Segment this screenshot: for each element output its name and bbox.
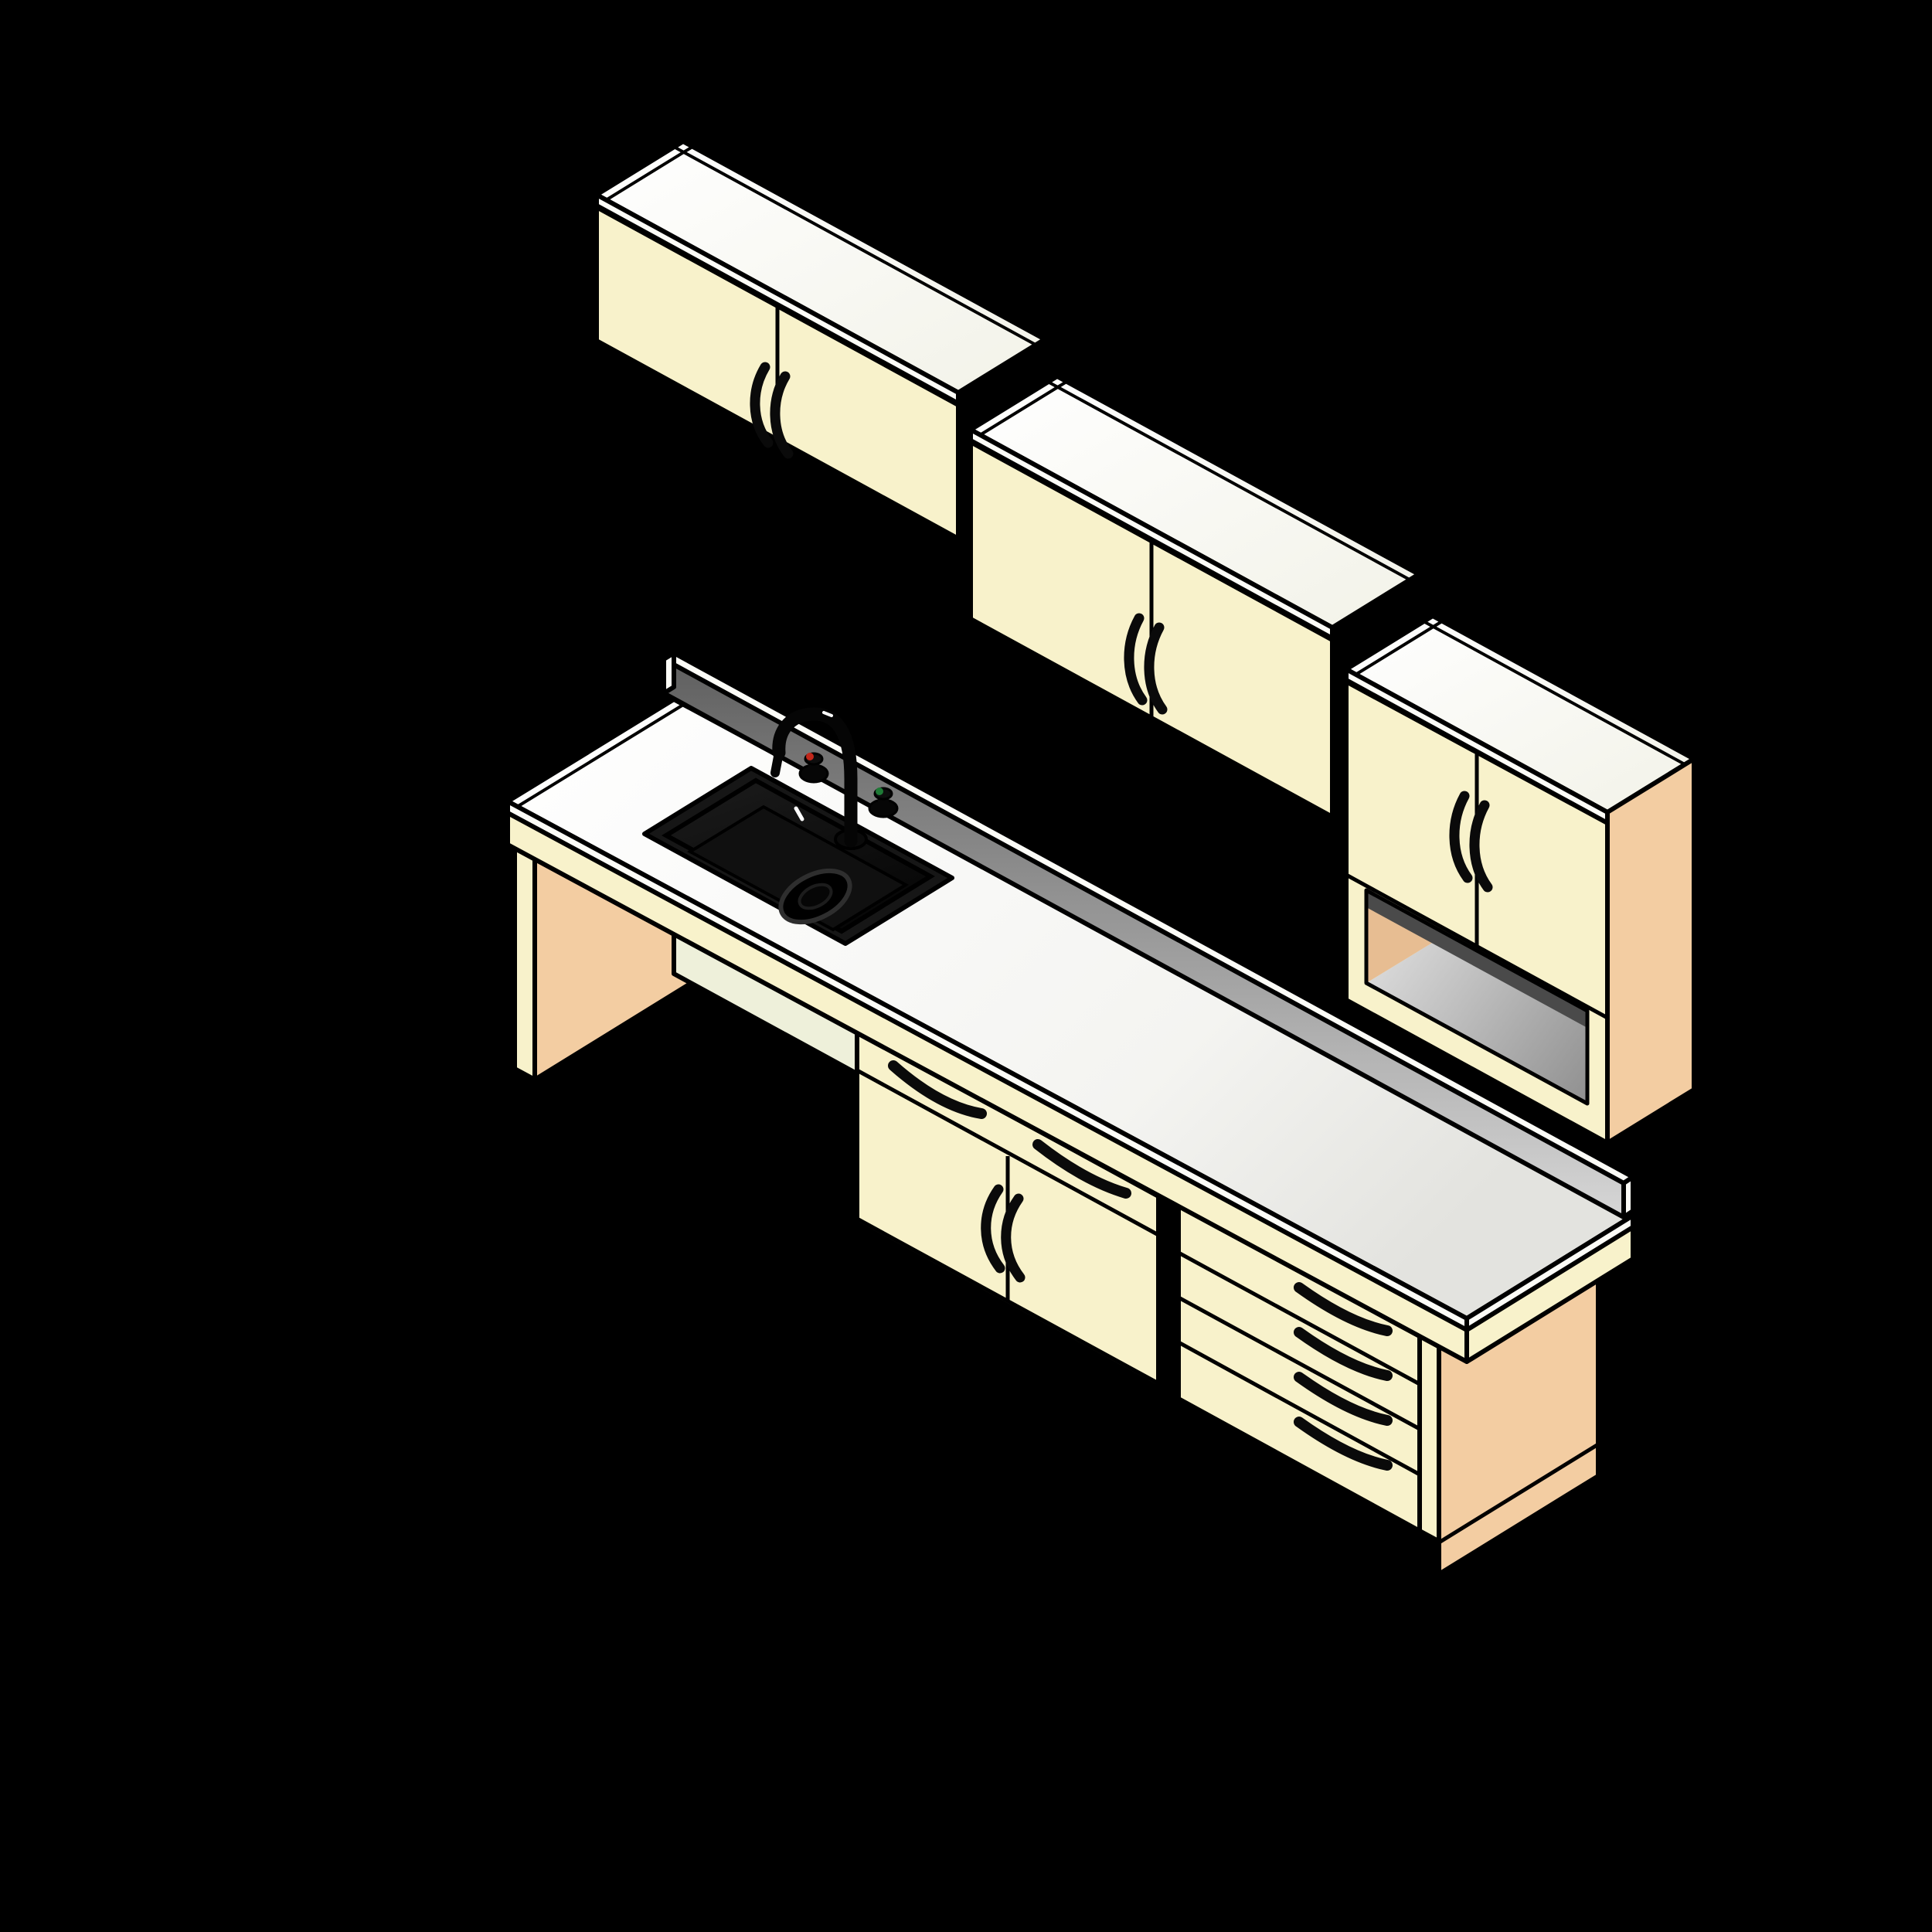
render-viewport	[0, 0, 1932, 1932]
faucet-spout-tip	[775, 753, 779, 773]
casework-isometric-render	[0, 0, 1932, 1932]
cold-dot	[876, 787, 883, 795]
backsplash-end-cap	[1624, 1177, 1633, 1217]
backsplash-left-cap	[664, 653, 674, 693]
wall-cabinet-end-panel	[1607, 759, 1694, 1143]
hot-dot	[806, 753, 814, 760]
